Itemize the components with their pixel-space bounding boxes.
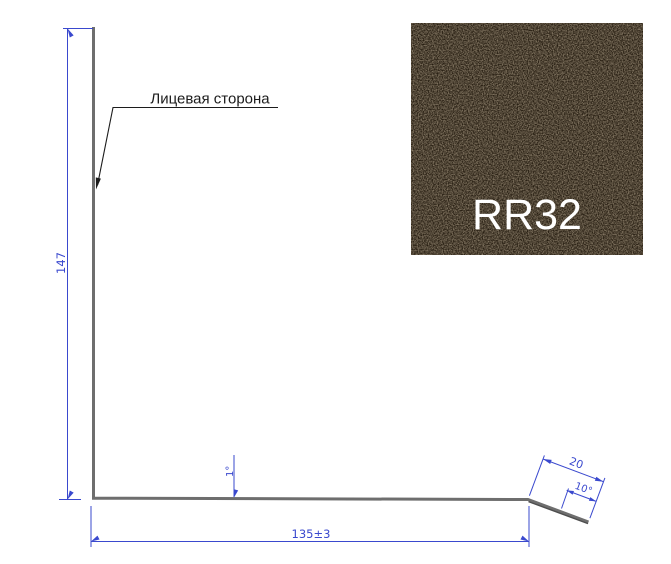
flange-angle-dim-text: 10° bbox=[573, 481, 593, 498]
flange-shadow-line bbox=[529, 502, 589, 524]
face-side-annotation: Лицевая сторона bbox=[96, 91, 270, 190]
width-dim-text: 135±3 bbox=[292, 527, 331, 541]
arrow-flange-length-right bbox=[595, 477, 604, 482]
color-swatch: RR32 bbox=[411, 23, 643, 255]
arrow-flange-angle-right bbox=[589, 497, 596, 501]
bottom-angle-dim-text: 1° bbox=[225, 466, 236, 477]
color-swatch-texture: RR32 bbox=[411, 23, 643, 255]
face-side-label: Лицевая сторона bbox=[150, 91, 270, 108]
face-side-arrow bbox=[96, 177, 101, 189]
arrow-flange-length-left bbox=[543, 459, 552, 464]
height-dim-text: 147 bbox=[54, 252, 68, 274]
face-side-leader bbox=[98, 108, 279, 186]
face-side-leader-line bbox=[98, 108, 279, 186]
flange-ext-left bbox=[529, 455, 544, 495]
technical-drawing-page: 147 135±3 1° 20 10° Лицевая сторона bbox=[0, 0, 671, 564]
flange-ext-mid bbox=[562, 489, 569, 509]
arrow-bottom-angle bbox=[232, 489, 238, 498]
flange-ext-right bbox=[590, 478, 605, 518]
swatch-code-label: RR32 bbox=[472, 191, 582, 239]
